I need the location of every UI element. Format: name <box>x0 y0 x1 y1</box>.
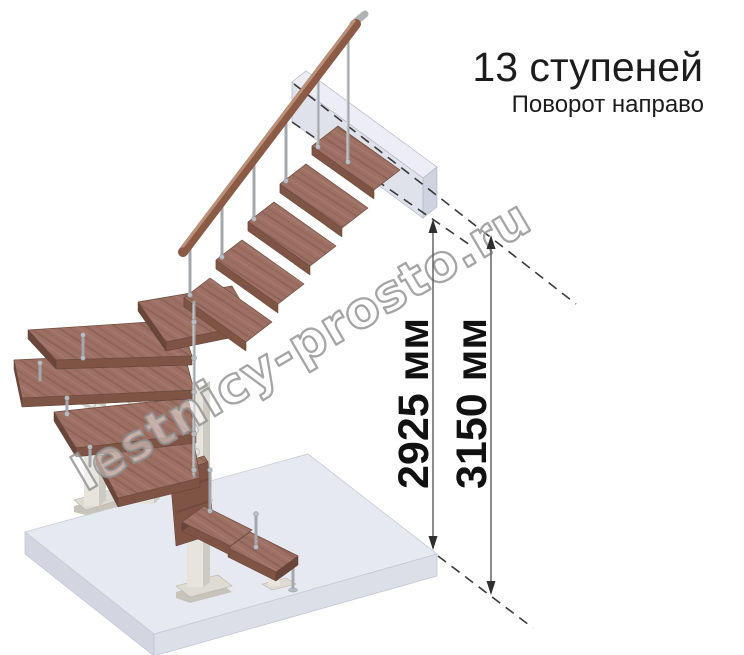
title-step-count: 13 ступеней <box>472 44 703 90</box>
handrail-end-cap <box>178 247 187 256</box>
staircase-diagram-page: lestnicy-prosto.ru 2925 мм 3150 мм 13 ст… <box>0 0 744 655</box>
extension-line-floor <box>438 556 533 628</box>
subtitle-turn-direction: Поворот направо <box>512 91 704 118</box>
staircase-illustration: lestnicy-prosto.ru 2925 мм 3150 мм 13 ст… <box>0 0 744 655</box>
dimension-label-2925: 2925 мм <box>390 318 438 489</box>
dimension-label-3150: 3150 мм <box>448 318 496 489</box>
